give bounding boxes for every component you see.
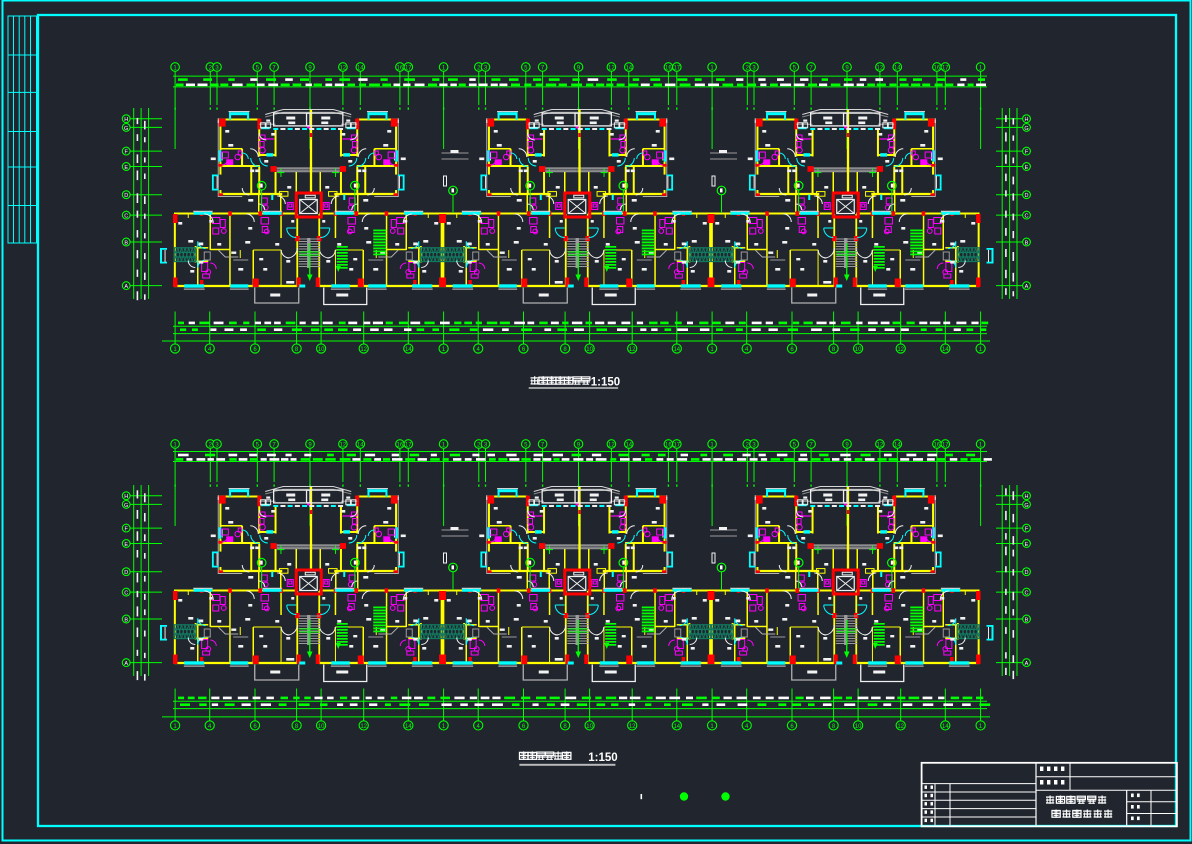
svg-text:14: 14 bbox=[405, 347, 412, 353]
svg-text:16: 16 bbox=[665, 66, 672, 72]
svg-text:D: D bbox=[1025, 570, 1029, 576]
svg-text:B: B bbox=[1025, 617, 1029, 623]
svg-text:A: A bbox=[1025, 661, 1029, 667]
svg-text:17: 17 bbox=[673, 66, 680, 72]
svg-text:12: 12 bbox=[629, 347, 636, 353]
svg-text:C: C bbox=[1025, 214, 1029, 220]
svg-text:17: 17 bbox=[673, 443, 680, 449]
svg-text:14: 14 bbox=[894, 443, 901, 449]
svg-text:A: A bbox=[124, 284, 128, 290]
svg-text:17: 17 bbox=[942, 66, 949, 72]
svg-text:G: G bbox=[1024, 503, 1028, 509]
svg-text:17: 17 bbox=[405, 443, 412, 449]
svg-text:16: 16 bbox=[397, 443, 404, 449]
svg-text:14: 14 bbox=[673, 724, 680, 730]
svg-text:H: H bbox=[124, 494, 128, 500]
svg-text:B: B bbox=[124, 240, 128, 246]
svg-text:C: C bbox=[124, 591, 128, 597]
svg-text:12: 12 bbox=[360, 347, 367, 353]
svg-text:A: A bbox=[1025, 284, 1029, 290]
svg-text:14: 14 bbox=[942, 347, 949, 353]
svg-text:E: E bbox=[124, 542, 128, 548]
svg-text:H: H bbox=[1025, 117, 1029, 123]
svg-text:14: 14 bbox=[673, 347, 680, 353]
svg-text:1:150: 1:150 bbox=[591, 377, 620, 389]
svg-text:14: 14 bbox=[405, 724, 412, 730]
svg-text:D: D bbox=[1025, 193, 1029, 199]
svg-text:17: 17 bbox=[942, 443, 949, 449]
svg-text:A: A bbox=[124, 661, 128, 667]
svg-text:10: 10 bbox=[855, 347, 862, 353]
svg-text:B: B bbox=[1025, 240, 1029, 246]
svg-text:C: C bbox=[124, 214, 128, 220]
svg-text:12: 12 bbox=[629, 724, 636, 730]
svg-text:H: H bbox=[1025, 494, 1029, 500]
svg-text:12: 12 bbox=[360, 724, 367, 730]
svg-text:G: G bbox=[124, 503, 128, 509]
svg-text:E: E bbox=[1025, 542, 1029, 548]
svg-text:12: 12 bbox=[897, 724, 904, 730]
svg-text:12: 12 bbox=[608, 66, 615, 72]
svg-text:16: 16 bbox=[934, 443, 941, 449]
svg-text:14: 14 bbox=[942, 724, 949, 730]
svg-text:B: B bbox=[124, 617, 128, 623]
svg-text:10: 10 bbox=[318, 724, 325, 730]
svg-text:D: D bbox=[124, 570, 128, 576]
svg-text:E: E bbox=[1025, 165, 1029, 171]
svg-text:14: 14 bbox=[357, 443, 364, 449]
svg-text:17: 17 bbox=[405, 66, 412, 72]
svg-text:G: G bbox=[1024, 126, 1028, 132]
svg-text:G: G bbox=[124, 126, 128, 132]
svg-text:10: 10 bbox=[855, 724, 862, 730]
svg-text:10: 10 bbox=[586, 347, 593, 353]
svg-text:10: 10 bbox=[318, 347, 325, 353]
svg-text:14: 14 bbox=[357, 66, 364, 72]
svg-text:12: 12 bbox=[877, 66, 884, 72]
svg-text:16: 16 bbox=[934, 66, 941, 72]
svg-text:C: C bbox=[1025, 591, 1029, 597]
svg-text:12: 12 bbox=[340, 443, 347, 449]
svg-text:14: 14 bbox=[625, 443, 632, 449]
svg-text:12: 12 bbox=[877, 443, 884, 449]
svg-text:12: 12 bbox=[608, 443, 615, 449]
svg-text:H: H bbox=[124, 117, 128, 123]
svg-text:14: 14 bbox=[894, 66, 901, 72]
svg-text:12: 12 bbox=[897, 347, 904, 353]
svg-text:1:150: 1:150 bbox=[588, 752, 617, 764]
svg-text:10: 10 bbox=[586, 724, 593, 730]
svg-text:16: 16 bbox=[397, 66, 404, 72]
svg-text:E: E bbox=[124, 165, 128, 171]
svg-text:16: 16 bbox=[665, 443, 672, 449]
svg-text:14: 14 bbox=[625, 66, 632, 72]
svg-text:12: 12 bbox=[340, 66, 347, 72]
svg-text:D: D bbox=[124, 193, 128, 199]
